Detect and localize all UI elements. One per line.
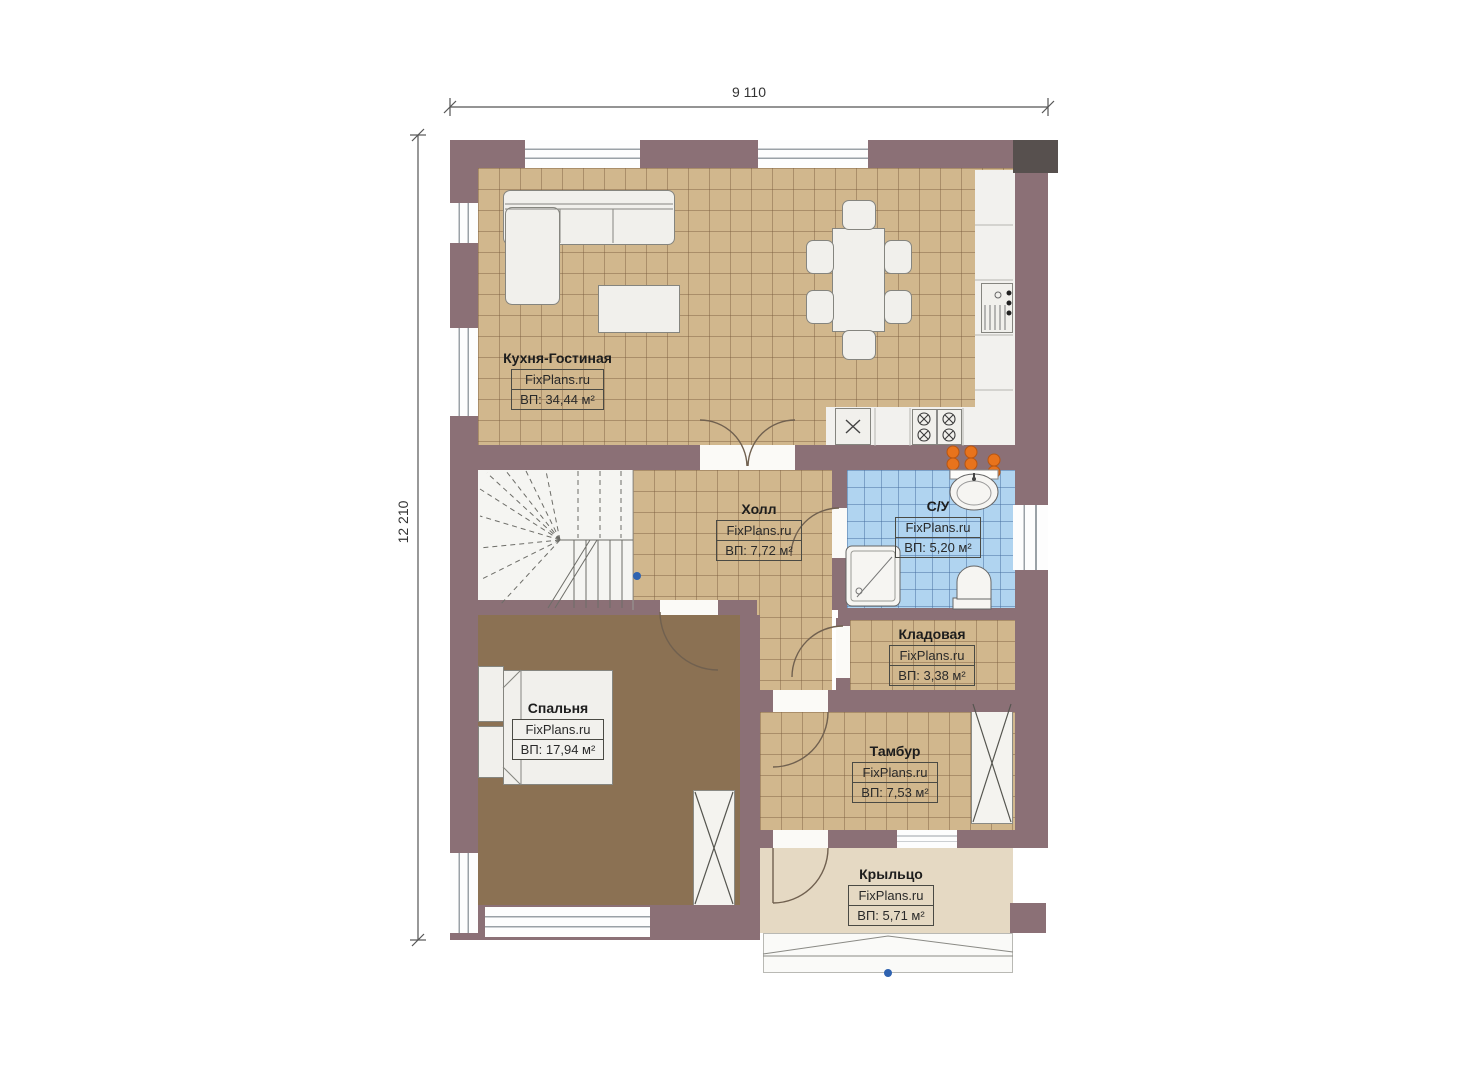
wall-kitchen-bottom-right xyxy=(793,445,1015,470)
nightstand-1 xyxy=(478,666,504,722)
room-info-box: FixPlans.ru ВП: 5,71 м² xyxy=(848,885,933,926)
window-left-2 xyxy=(450,328,478,416)
window-top-2 xyxy=(758,140,868,168)
room-area-storage: ВП: 3,38 м² xyxy=(890,666,973,685)
door-opening-hall-vestibule xyxy=(773,690,828,712)
room-name-vestibule: Тамбур xyxy=(841,743,949,759)
room-label-bedroom: Спальня FixPlans.ru ВП: 17,94 м² xyxy=(502,700,614,760)
watermark-fixplans: FixPlans.ru xyxy=(512,370,603,390)
bedroom-wardrobe xyxy=(693,790,735,907)
window-left-3 xyxy=(450,853,478,933)
kitchen-sink-unit xyxy=(835,408,871,445)
dining-chair-top xyxy=(842,200,876,230)
watermark-fixplans: FixPlans.ru xyxy=(513,720,604,740)
stove xyxy=(912,409,962,445)
window-vestibule-bottom xyxy=(897,830,957,848)
dining-chair-right-2 xyxy=(884,290,912,324)
staircase-area xyxy=(478,470,635,600)
wall-bedroom-right xyxy=(740,615,760,905)
dimension-top-label: 9 110 xyxy=(450,84,1048,100)
wall-bathroom-left-upper xyxy=(832,470,847,510)
dimension-left-label: 12 210 xyxy=(395,472,411,572)
watermark-fixplans: FixPlans.ru xyxy=(853,763,936,783)
room-area-vestibule: ВП: 7,53 м² xyxy=(853,783,936,802)
window-left-1 xyxy=(450,203,478,243)
room-info-box: FixPlans.ru ВП: 7,72 м² xyxy=(716,520,801,561)
wall-bedroom-top-right xyxy=(716,600,757,615)
nightstand-2 xyxy=(478,726,504,778)
dimension-left-line xyxy=(410,129,426,946)
wall-bathroom-storage xyxy=(838,608,1015,620)
room-label-vestibule: Тамбур FixPlans.ru ВП: 7,53 м² xyxy=(841,743,949,803)
room-label-porch: Крыльцо FixPlans.ru ВП: 5,71 м² xyxy=(836,866,946,926)
room-area-bedroom: ВП: 17,94 м² xyxy=(513,740,604,759)
window-bathroom-right xyxy=(1013,505,1048,570)
room-info-box: FixPlans.ru ВП: 5,20 м² xyxy=(895,517,980,558)
room-label-kitchen: Кухня-Гостиная FixPlans.ru ВП: 34,44 м² xyxy=(480,350,635,410)
wall-exterior-left xyxy=(450,140,478,940)
window-top-1 xyxy=(525,140,640,168)
room-name-storage: Кладовая xyxy=(878,626,986,642)
wall-hall-vestibule-right xyxy=(826,690,1015,712)
room-area-hall: ВП: 7,72 м² xyxy=(717,541,800,560)
room-name-bedroom: Спальня xyxy=(502,700,614,716)
room-name-porch: Крыльцо xyxy=(836,866,946,882)
window-bedroom-bottom xyxy=(485,907,650,937)
room-name-kitchen: Кухня-Гостиная xyxy=(480,350,635,366)
door-opening-storage xyxy=(836,626,850,678)
dining-chair-left-2 xyxy=(806,290,834,324)
wall-bedroom-top-left xyxy=(478,600,660,615)
kitchen-appliance xyxy=(981,283,1013,333)
porch-steps xyxy=(763,933,1013,973)
dimension-top-line xyxy=(444,98,1054,116)
watermark-fixplans: FixPlans.ru xyxy=(717,521,800,541)
porch-pier xyxy=(1010,903,1046,933)
dining-chair-left-1 xyxy=(806,240,834,274)
room-label-storage: Кладовая FixPlans.ru ВП: 3,38 м² xyxy=(878,626,986,686)
vestibule-closet xyxy=(971,702,1013,824)
sofa-chaise xyxy=(505,207,560,305)
dining-table xyxy=(832,228,885,332)
room-name-hall: Холл xyxy=(705,501,813,517)
chimney-block xyxy=(1013,140,1058,173)
wall-kitchen-bottom-left xyxy=(450,445,700,470)
room-label-bathroom: С/У FixPlans.ru ВП: 5,20 м² xyxy=(884,498,992,558)
door-opening-bedroom xyxy=(660,600,718,615)
room-name-bathroom: С/У xyxy=(884,498,992,514)
room-info-box: FixPlans.ru ВП: 3,38 м² xyxy=(889,645,974,686)
watermark-fixplans: FixPlans.ru xyxy=(890,646,973,666)
door-opening-kitchen-hall xyxy=(700,445,795,470)
watermark-fixplans: FixPlans.ru xyxy=(849,886,932,906)
wall-vestibule-bottom-right xyxy=(955,830,1048,848)
wall-vestibule-bottom-mid xyxy=(826,830,897,848)
floor-plan-page: 9 110 12 210 xyxy=(0,0,1474,1080)
room-info-box: FixPlans.ru ВП: 7,53 м² xyxy=(852,762,937,803)
wall-exterior-right xyxy=(1015,140,1048,848)
room-info-box: FixPlans.ru ВП: 17,94 м² xyxy=(512,719,605,760)
dining-chair-bottom xyxy=(842,330,876,360)
door-opening-bathroom xyxy=(832,508,847,558)
room-area-porch: ВП: 5,71 м² xyxy=(849,906,932,925)
room-area-bathroom: ВП: 5,20 м² xyxy=(896,538,979,557)
door-opening-entrance xyxy=(773,830,828,848)
wall-bathroom-left-lower xyxy=(832,558,847,610)
room-label-hall: Холл FixPlans.ru ВП: 7,72 м² xyxy=(705,501,813,561)
watermark-fixplans: FixPlans.ru xyxy=(896,518,979,538)
coffee-table xyxy=(598,285,680,333)
room-info-box: FixPlans.ru ВП: 34,44 м² xyxy=(511,369,604,410)
dining-chair-right-1 xyxy=(884,240,912,274)
room-area-kitchen: ВП: 34,44 м² xyxy=(512,390,603,409)
